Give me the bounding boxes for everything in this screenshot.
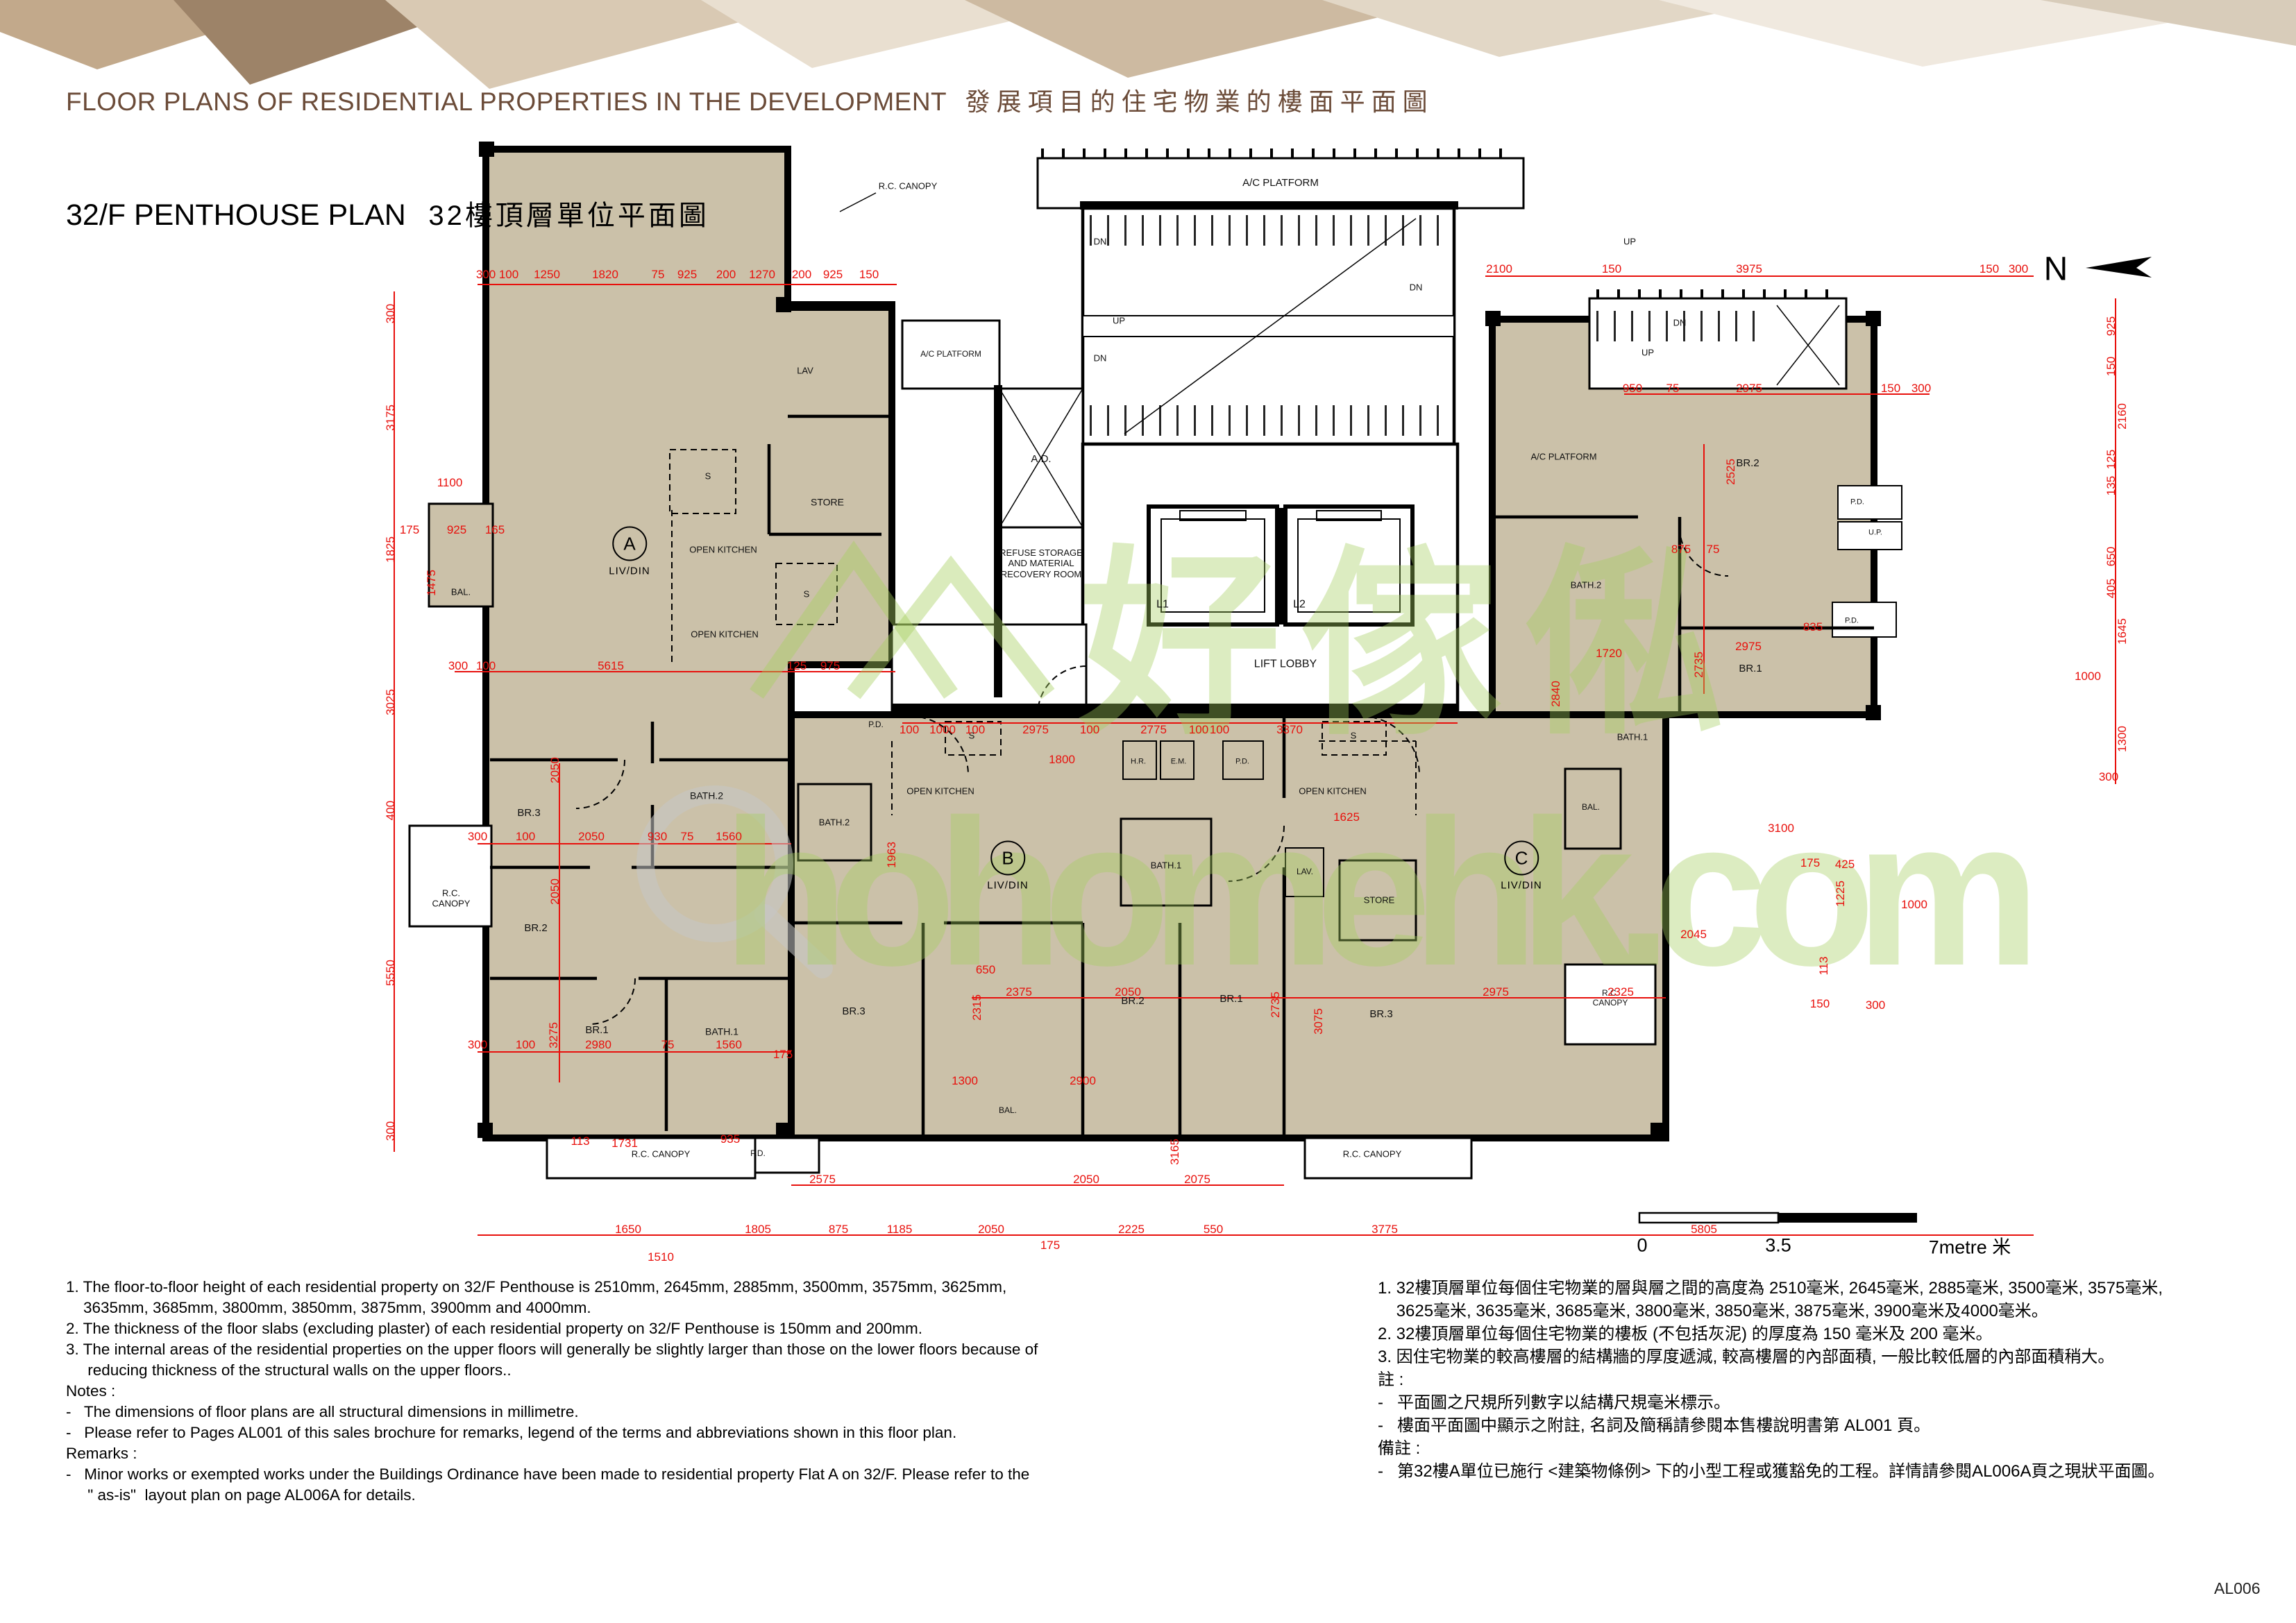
room-label: H.R. [1131,758,1146,767]
note-line: - 第32樓A單位已施行 <建築物條例> 下的小型工程或獲豁免的工程。詳情請參閱… [1378,1460,2252,1483]
room-label: STORE [1364,894,1395,905]
dimension-label: 300 [384,1121,398,1141]
dimension-label: 925 [447,523,466,537]
dimension-label: 1000 [2075,670,2101,683]
dimension-label: 300 [1866,999,1885,1012]
dimension-label: 175 [400,523,419,537]
dimension-label: 100 [516,830,535,844]
room-label: R.C. CANOPY [632,1148,691,1159]
room-label: REFUSE STORAGE AND MATERIAL RECOVERY ROO… [999,547,1083,579]
note-line: 3. The internal areas of the residential… [66,1339,1371,1360]
dimension-label: 1650 [615,1223,641,1237]
dimension-label: 930 [648,830,667,844]
dimension-label: 3975 [1736,262,1762,276]
dimension-label: 2375 [1006,985,1032,999]
dimension-label: 75 [1666,382,1680,396]
room-label: BAL. [999,1105,1017,1115]
notes-chinese: 1. 32樓頂層單位每個住宅物業的層與層之間的高度為 2510毫米, 2645毫… [1378,1277,2252,1483]
dimension-label: 300 [2009,262,2028,276]
dimension-label: 650 [976,963,995,977]
room-label: R.C. CANOPY [879,180,938,191]
room-label: BR.3 [517,807,540,819]
room-label: BATH.1 [1617,731,1648,742]
dimension-label: 925 [2104,316,2118,336]
dimension-label: 1250 [534,268,560,282]
room-label: BATH.2 [819,817,850,827]
dimension-label: 1825 [384,536,398,563]
dimension-label: 875 [1671,543,1691,556]
scale-bar [1639,1213,1917,1223]
unit-letter: A [612,527,647,561]
room-label: UP [1641,347,1654,357]
dimension-label: 125 [787,659,807,673]
dimension-label: 150 [2104,357,2118,376]
note-line: 1. 32樓頂層單位每個住宅物業的層與層之間的高度為 2510毫米, 2645毫… [1378,1277,2252,1300]
room-label: OPEN KITCHEN [1299,785,1367,796]
dimension-label: 150 [1980,262,1999,276]
scale-mid: 3.5 [1765,1235,1791,1257]
dimension-label: 400 [384,801,398,820]
unit-letter: C [1504,841,1539,876]
dimension-label: 5550 [384,960,398,986]
note-line: 2. 32樓頂層單位每個住宅物業的樓板 (不包括灰泥) 的厚度為 150 毫米及… [1378,1323,2252,1345]
dimension-label: 300 [448,659,468,673]
room-label: OPEN KITCHEN [906,785,974,796]
dimension-label: 2735 [1692,652,1706,678]
unit-badge-c: CLIV/DIN [1501,841,1542,892]
dimension-label: 975 [820,659,840,673]
dimension-label: 2050 [978,1223,1004,1237]
dimension-label: 1185 [887,1223,913,1237]
dimension-label: 2315 [970,994,984,1021]
page-title-zh: 發展項目的住宅物業的樓面平面圖 [965,87,1434,116]
dimension-label: 2900 [1070,1074,1096,1088]
dimension-label: 2975 [1736,382,1762,396]
unit-badge-a: ALIV/DIN [609,527,650,577]
dimension-label: 150 [859,268,879,282]
room-label: BR.1 [585,1024,608,1037]
north-arrow-icon [2086,257,2152,278]
dimension-label: 1560 [716,830,742,844]
dimension-label: 3165 [1168,1139,1182,1165]
room-label: L1 [1156,599,1169,612]
room-label: BR.3 [1369,1008,1392,1021]
dimension-label: 1300 [2116,726,2129,752]
dimension-label: 3775 [1371,1223,1398,1237]
note-line: reducing thickness of the structural wal… [66,1360,1371,1381]
room-label: OPEN KITCHEN [689,544,757,554]
dimension-label: 950 [1623,382,1642,396]
room-label: P.D. [1850,498,1864,507]
room-label: BATH.1 [705,1026,738,1038]
dimension-label: 1560 [716,1038,742,1052]
dimension-label: 3025 [384,689,398,715]
dimension-label: 650 [2104,547,2118,566]
room-label: A/C PLATFORM [1242,177,1319,189]
dimension-label: 3275 [547,1022,561,1048]
scale-end: 7metre 米 [1929,1232,2011,1259]
dimension-label: 2735 [1269,992,1283,1018]
note-line: 3635mm, 3685mm, 3800mm, 3850mm, 3875mm, … [66,1298,1371,1318]
room-label: DN [1410,282,1423,292]
unit-letter: B [990,841,1025,876]
dimension-label: 165 [485,523,505,537]
dimension-label: 125 [2104,450,2118,469]
dimension-label: 1820 [592,268,618,282]
room-label: R.C. CANOPY [432,888,471,910]
dimension-label: 300 [468,1038,487,1052]
room-label: P.D. [1845,617,1859,626]
dimension-label: 1300 [952,1074,978,1088]
note-line: - Minor works or exempted works under th… [66,1464,1371,1485]
room-label: UP [1113,315,1125,325]
dimension-label: 300 [468,830,487,844]
dimension-label: 1225 [1834,881,1848,907]
dimension-label: 75 [661,1038,675,1052]
dimension-label: 2050 [1073,1173,1099,1187]
dimension-label: 175 [1800,856,1820,870]
plan-subtitle: 32/F PENTHOUSE PLAN 32樓頂層單位平面圖 [66,193,709,233]
dimension-label: 2325 [1607,985,1634,999]
dimension-label: 1731 [611,1137,638,1150]
room-label: A.D. [1031,453,1051,466]
room-label: BAL. [451,586,471,597]
room-label: LAV [797,365,813,375]
dimension-label: 2050 [1115,985,1141,999]
room-label: U.P. [1868,529,1882,538]
room-label: BATH.2 [1571,579,1602,590]
dimension-label: 135 [2104,476,2118,495]
dimension-label: 2160 [2116,403,2129,430]
dimension-label: 2975 [1022,723,1049,737]
dimension-label: 2975 [1483,985,1509,999]
room-label: S [705,470,711,481]
dimension-label: 3175 [384,405,398,431]
room-label: BR.2 [524,922,547,935]
room-label: P.D. [750,1148,766,1158]
dimension-label: 150 [1881,382,1900,396]
dimension-label: 1100 [437,476,463,490]
dimension-label: 5805 [1691,1223,1717,1237]
dimension-label: 1270 [749,268,775,282]
room-label: A/C PLATFORM [920,349,981,359]
dimension-label: 925 [677,268,697,282]
room-label: A/C PLATFORM [1530,451,1596,461]
dimension-label: 2840 [1549,681,1563,707]
dimension-label: 75 [1707,543,1720,556]
dimension-label: 935 [720,1132,740,1146]
page-title-en: FLOOR PLANS OF RESIDENTIAL PROPERTIES IN… [66,87,947,116]
dimension-label: 1645 [2116,618,2129,645]
room-label: R.C. CANOPY [1343,1148,1402,1159]
unit-livdin-label: LIV/DIN [1501,880,1542,892]
dimension-label: 175 [773,1048,793,1062]
note-line: Remarks : [66,1443,1371,1464]
dimension-label: 100 [476,659,496,673]
notes-english: 1. The floor-to-floor height of each res… [66,1277,1371,1506]
room-label: BAL. [1582,802,1600,812]
room-label: UP [1623,236,1636,246]
dimension-label: 425 [1835,858,1855,872]
dimension-label: 200 [716,268,736,282]
dimension-label: 2075 [1184,1173,1210,1187]
room-label: S [1351,730,1357,740]
dimension-label: 2050 [548,878,562,905]
dimension-label: 175 [1040,1239,1060,1252]
brochure-page: { "header": { "title_en": "FLOOR PLANS O… [0,0,2296,1623]
room-label: BR.1 [1739,663,1762,675]
dimension-label: 3075 [1312,1008,1326,1035]
dimension-label: 1720 [1596,647,1622,661]
room-label: BATH.2 [690,790,723,802]
dimension-label: 300 [2099,770,2118,784]
dimension-label: 1625 [1333,810,1360,824]
room-label: LIFT LOBBY [1254,658,1317,672]
note-line: 3. 因住宅物業的較高樓層的結構牆的厚度遞減, 較高樓層的內部面積, 一般比較低… [1378,1345,2252,1368]
dimension-label: 300 [1911,382,1931,396]
room-label: S [804,588,810,599]
dimension-label: 2525 [1724,459,1738,485]
dimension-label: 2575 [809,1173,836,1187]
dimension-label: 113 [571,1135,589,1148]
room-label: DN [1673,317,1687,328]
dimension-label: 100 [1189,723,1208,737]
dimension-label: 1000 [1901,898,1927,912]
dimension-label: 835 [1803,620,1823,634]
banner-graphic [0,0,2296,89]
note-line: 3625毫米, 3635毫米, 3685毫米, 3800毫米, 3850毫米, … [1378,1300,2252,1323]
dimension-label: 2100 [1486,262,1512,276]
unit-livdin-label: LIV/DIN [609,566,650,577]
room-label: L2 [1293,599,1306,612]
dimension-label: 2225 [1118,1223,1145,1237]
dimension-label: 100 [965,723,985,737]
page-title: FLOOR PLANS OF RESIDENTIAL PROPERTIES IN… [66,82,1434,118]
dimension-label: 1000 [929,723,956,737]
note-line: - Please refer to Pages AL001 of this sa… [66,1422,1371,1443]
svg-text:好傢俬: 好傢俬 [1076,533,1746,758]
dimension-label: 1963 [885,842,899,868]
note-line: 註 : [1378,1368,2252,1391]
room-label: DN [1094,352,1107,363]
dimension-label: 113 [1817,956,1831,975]
dimension-label: 100 [900,723,919,737]
room-label: DN [1094,236,1107,246]
dimension-label: 2050 [548,757,562,783]
dimension-label: 200 [792,268,811,282]
dimension-label: 2045 [1680,928,1707,942]
dimension-label: 875 [829,1223,848,1237]
dimension-label: 3100 [1768,822,1794,835]
room-label: OPEN KITCHEN [691,629,759,639]
room-label: BR.1 [1219,993,1242,1005]
dimension-label: 1805 [745,1223,771,1237]
note-line: " as-is" layout plan on page AL006A for … [66,1485,1371,1506]
unit-badge-b: BLIV/DIN [987,841,1029,892]
dimension-label: 2980 [585,1038,611,1052]
dimension-label: 300 [476,268,496,282]
room-label: LAV. [1297,867,1313,876]
dimension-label: 75 [652,268,665,282]
dimension-label: 150 [1810,997,1830,1011]
unit-livdin-label: LIV/DIN [987,880,1029,892]
note-line: 備註 : [1378,1437,2252,1460]
room-label: STORE [811,497,844,509]
dimension-label: 100 [1080,723,1099,737]
scale-start: 0 [1637,1235,1647,1257]
plan-subtitle-en: 32/F PENTHOUSE PLAN [66,198,406,232]
dimension-label: 2775 [1140,723,1167,737]
dimension-label: 405 [2104,579,2118,598]
note-line: - The dimensions of floor plans are all … [66,1402,1371,1422]
room-label: BR.2 [1736,457,1759,470]
dimension-label: 75 [681,830,694,844]
note-line: - 平面圖之尺規所列數字以結構尺規毫米標示。 [1378,1391,2252,1414]
room-label: P.D. [1235,758,1249,767]
room-label: BR.3 [842,1005,865,1018]
dimension-label: 1475 [425,570,439,596]
dimension-label: 5615 [598,659,624,673]
dimension-label: 300 [384,304,398,323]
room-label: E.M. [1171,758,1187,767]
note-line: Notes : [66,1381,1371,1402]
dimension-label: 2975 [1735,640,1762,654]
dimension-label: 2050 [578,830,605,844]
dimension-label: 100 [516,1038,535,1052]
room-label: P.D. [868,720,884,729]
room-label: BATH.1 [1151,860,1182,870]
dimension-label: 100 [1210,723,1229,737]
dimension-label: 100 [499,268,518,282]
dimension-label: 925 [823,268,843,282]
dimension-label: 1510 [648,1250,674,1264]
dimension-label: 1800 [1049,753,1075,767]
plan-subtitle-zh: 32樓頂層單位平面圖 [428,201,709,231]
note-line: 2. The thickness of the floor slabs (exc… [66,1318,1371,1339]
dimension-label: 150 [1602,262,1621,276]
page-code: AL006 [2214,1579,2261,1598]
note-line: 1. The floor-to-floor height of each res… [66,1277,1371,1298]
dimension-label: 3370 [1276,723,1303,737]
note-line: - 樓面平面圖中顯示之附註, 名詞及簡稱請參閱本售樓說明書第 AL001 頁。 [1378,1414,2252,1437]
dimension-label: 550 [1204,1223,1223,1237]
compass-label: N [2044,250,2068,289]
